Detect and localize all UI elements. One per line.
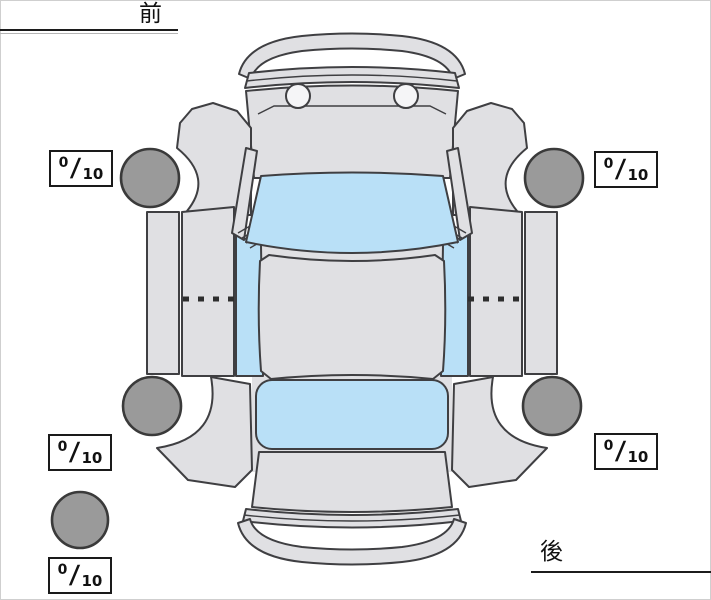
score-separator: / (70, 157, 82, 180)
score-max: 10 (82, 449, 103, 467)
rear-right-tire[interactable] (523, 377, 581, 435)
score-value: 0 (58, 439, 69, 455)
score-box-rear-left[interactable]: 0 / 10 (48, 434, 112, 471)
score-separator: / (69, 441, 81, 464)
windshield-glass (246, 173, 458, 254)
score-box-rear-right[interactable]: 0 / 10 (594, 433, 658, 470)
score-separator: / (69, 564, 81, 587)
hood-panel (246, 86, 458, 179)
score-value: 0 (58, 562, 69, 578)
right-door-panel (470, 207, 522, 376)
score-value: 0 (604, 156, 615, 172)
score-separator: / (615, 158, 627, 181)
score-separator: / (615, 440, 627, 463)
vehicle-condition-diagram: 前 後 (0, 0, 711, 600)
front-right-tire[interactable] (525, 149, 583, 207)
car-top-view (0, 0, 711, 600)
front-left-tire[interactable] (121, 149, 179, 207)
score-box-spare[interactable]: 0 / 10 (48, 557, 112, 594)
left-headlight-icon (286, 84, 310, 108)
score-max: 10 (628, 166, 649, 184)
left-door-panel (182, 207, 234, 376)
left-side-sill (147, 212, 179, 374)
right-side-sill (525, 212, 557, 374)
score-max: 10 (83, 165, 104, 183)
rear-window-glass (256, 380, 448, 449)
score-value: 0 (604, 438, 615, 454)
score-max: 10 (82, 572, 103, 590)
rear-left-tire[interactable] (123, 377, 181, 435)
right-headlight-icon (394, 84, 418, 108)
trunk-panel (252, 452, 452, 512)
score-max: 10 (628, 448, 649, 466)
spare-tire[interactable] (52, 492, 108, 548)
score-box-front-right[interactable]: 0 / 10 (594, 151, 658, 188)
roof-panel (259, 255, 446, 379)
score-value: 0 (59, 155, 70, 171)
score-box-front-left[interactable]: 0 / 10 (49, 150, 113, 187)
